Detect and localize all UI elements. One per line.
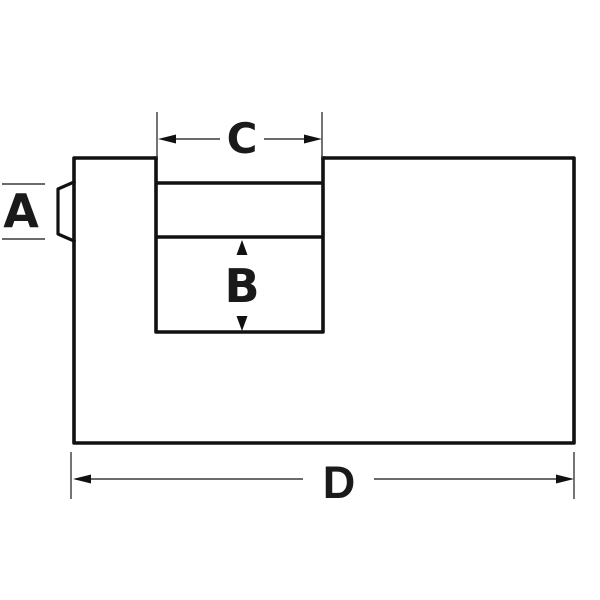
dim-c-right-arrowhead — [304, 135, 322, 144]
lock-outline-group — [58, 158, 574, 443]
dim-a-label: A — [3, 184, 39, 238]
dimension-lines-group — [2, 112, 574, 499]
dimension-labels-group: A B C D — [3, 114, 355, 508]
dim-b-up-arrowhead — [237, 240, 248, 255]
dim-d-left-arrowhead — [73, 475, 91, 484]
dim-c-left-arrowhead — [158, 135, 176, 144]
padlock-dimension-diagram: A B C D — [0, 0, 600, 600]
dim-d-label: D — [323, 457, 356, 508]
dim-d-right-arrowhead — [556, 475, 574, 484]
diagram-page: A B C D — [0, 0, 600, 600]
dim-b-down-arrowhead — [237, 316, 248, 331]
side-tab-outline — [58, 182, 74, 241]
dim-c-label: C — [227, 114, 258, 163]
dim-b-label: B — [224, 259, 259, 313]
